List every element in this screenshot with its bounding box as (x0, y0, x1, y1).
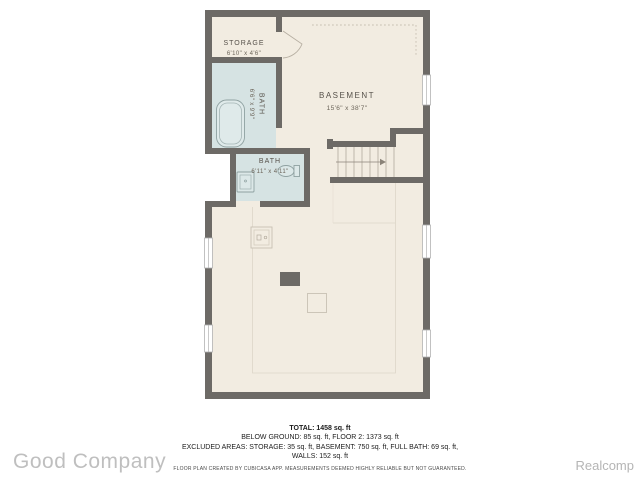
window (205, 325, 213, 352)
wall-bath-lower-left (230, 154, 236, 201)
wall-left-upper (205, 10, 212, 154)
wall-stair-bottom (330, 177, 430, 183)
bath-lower-dims: 6'11" x 4'11" (251, 169, 288, 175)
window (423, 330, 431, 357)
wall-stair-left-stub (327, 139, 333, 149)
window (423, 225, 431, 258)
floor-plan-page: STORAGE 6'10" x 4'6" BATH 6'6" x 9'9" BA… (0, 0, 640, 480)
good-company-logo: Good Company (13, 450, 166, 474)
realcomp-logo: Realcomp (575, 458, 634, 473)
total-area-line: TOTAL: 1458 sq. ft (0, 424, 640, 433)
washer-icon (251, 227, 272, 248)
storage-dims: 6'10" x 4'6" (227, 51, 261, 57)
wall-bath-lower-bottom-b (260, 201, 310, 207)
wall-bath-lower-right (304, 148, 310, 207)
basement-name: BASEMENT (319, 91, 375, 100)
basement-dims: 15'6" x 38'7" (327, 105, 368, 112)
bath-upper-name: BATH (258, 93, 265, 115)
wall-storage-bottom (205, 57, 282, 63)
bath-upper-dims: 6'6" x 9'9" (248, 89, 254, 120)
wall-storage-right-stub (276, 17, 282, 32)
window (205, 238, 213, 268)
wall-bottom (205, 392, 430, 399)
wall-left-lower (205, 201, 212, 399)
bath-lower-name: BATH (259, 158, 281, 165)
wall-top (205, 10, 430, 17)
below-ground-line: BELOW GROUND: 85 sq. ft, FLOOR 2: 1373 s… (0, 433, 640, 442)
sink-icon (237, 172, 254, 192)
storage-name: STORAGE (223, 40, 264, 47)
floor-plan: STORAGE 6'10" x 4'6" BATH 6'6" x 9'9" BA… (0, 0, 640, 480)
wall-main-top-left (205, 201, 236, 207)
wall-bath-divider (205, 148, 310, 154)
wall-stair-top (330, 141, 396, 147)
furnace-icon (280, 272, 300, 286)
window (423, 75, 431, 105)
bathtub (217, 100, 245, 147)
wall-bath-upper-right (276, 63, 282, 128)
